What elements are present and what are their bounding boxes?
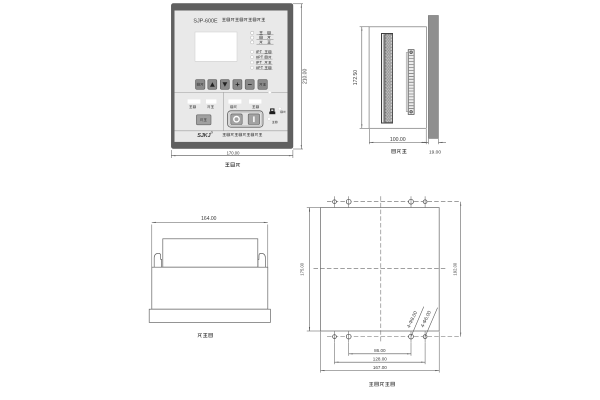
svg-text:210.00: 210.00 — [302, 69, 308, 85]
svg-text:164.00: 164.00 — [201, 216, 217, 222]
svg-text:SJKJ: SJKJ — [197, 133, 211, 139]
svg-text:19.00: 19.00 — [429, 149, 441, 155]
svg-text:167.00: 167.00 — [373, 365, 387, 370]
svg-text:170.00: 170.00 — [227, 151, 240, 156]
svg-text:128.00: 128.00 — [373, 356, 387, 361]
svg-text:192.00: 192.00 — [452, 262, 457, 275]
svg-text:172.50: 172.50 — [353, 70, 359, 86]
svg-text:100.00: 100.00 — [390, 137, 406, 143]
svg-text:86.00: 86.00 — [374, 348, 386, 353]
svg-text:SJP-600E: SJP-600E — [193, 18, 218, 24]
svg-text:175.00: 175.00 — [300, 262, 305, 275]
